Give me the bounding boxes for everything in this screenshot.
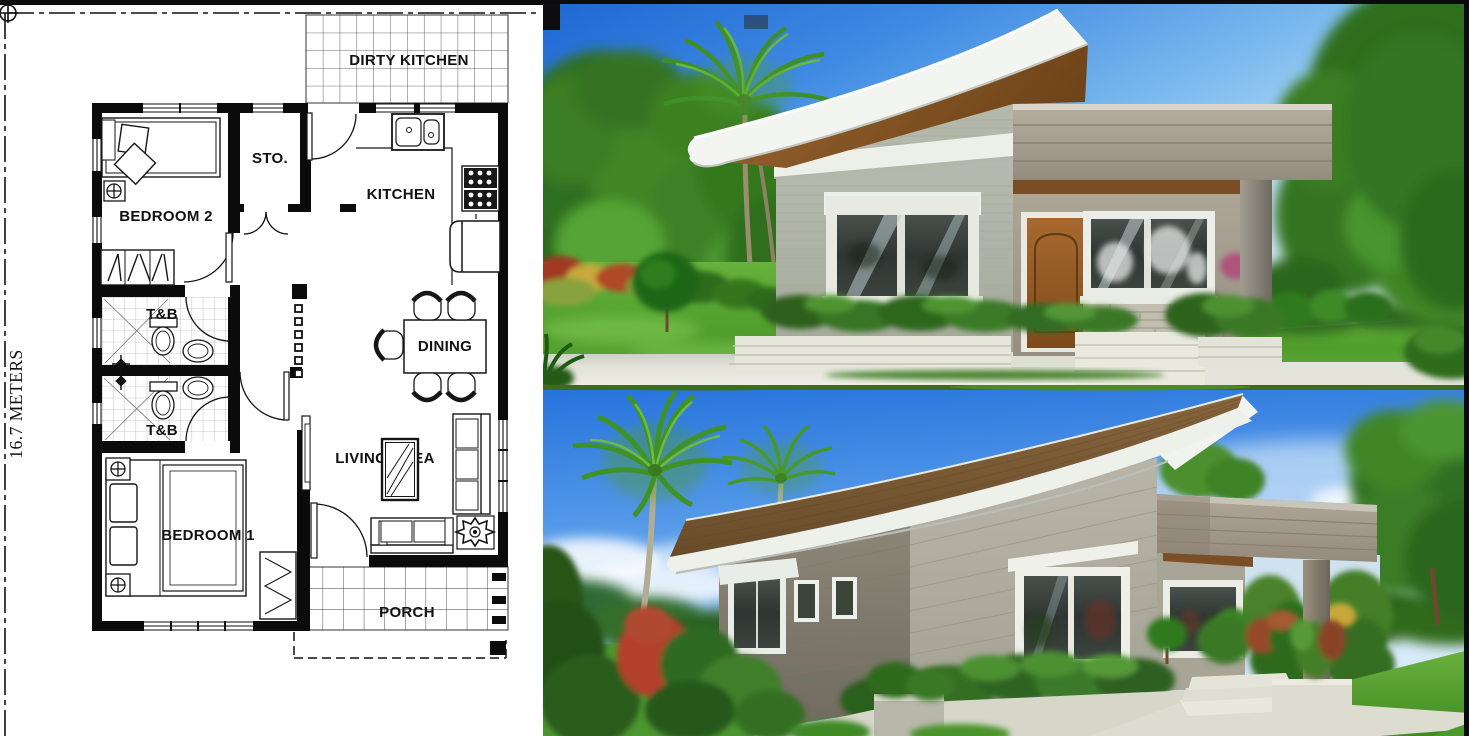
svg-text:DIRTY KITCHEN: DIRTY KITCHEN	[349, 52, 468, 69]
svg-text:T&B: T&B	[146, 306, 178, 323]
svg-text:BEDROOM 2: BEDROOM 2	[119, 208, 213, 225]
svg-text:16.7 METERS: 16.7 METERS	[6, 349, 26, 459]
svg-text:KITCHEN: KITCHEN	[367, 186, 436, 203]
svg-text:BEDROOM 1: BEDROOM 1	[161, 527, 255, 544]
svg-text:T&B: T&B	[146, 422, 178, 439]
svg-text:DINING: DINING	[418, 338, 472, 355]
svg-text:PORCH: PORCH	[379, 604, 435, 621]
svg-text:STO.: STO.	[252, 150, 288, 167]
